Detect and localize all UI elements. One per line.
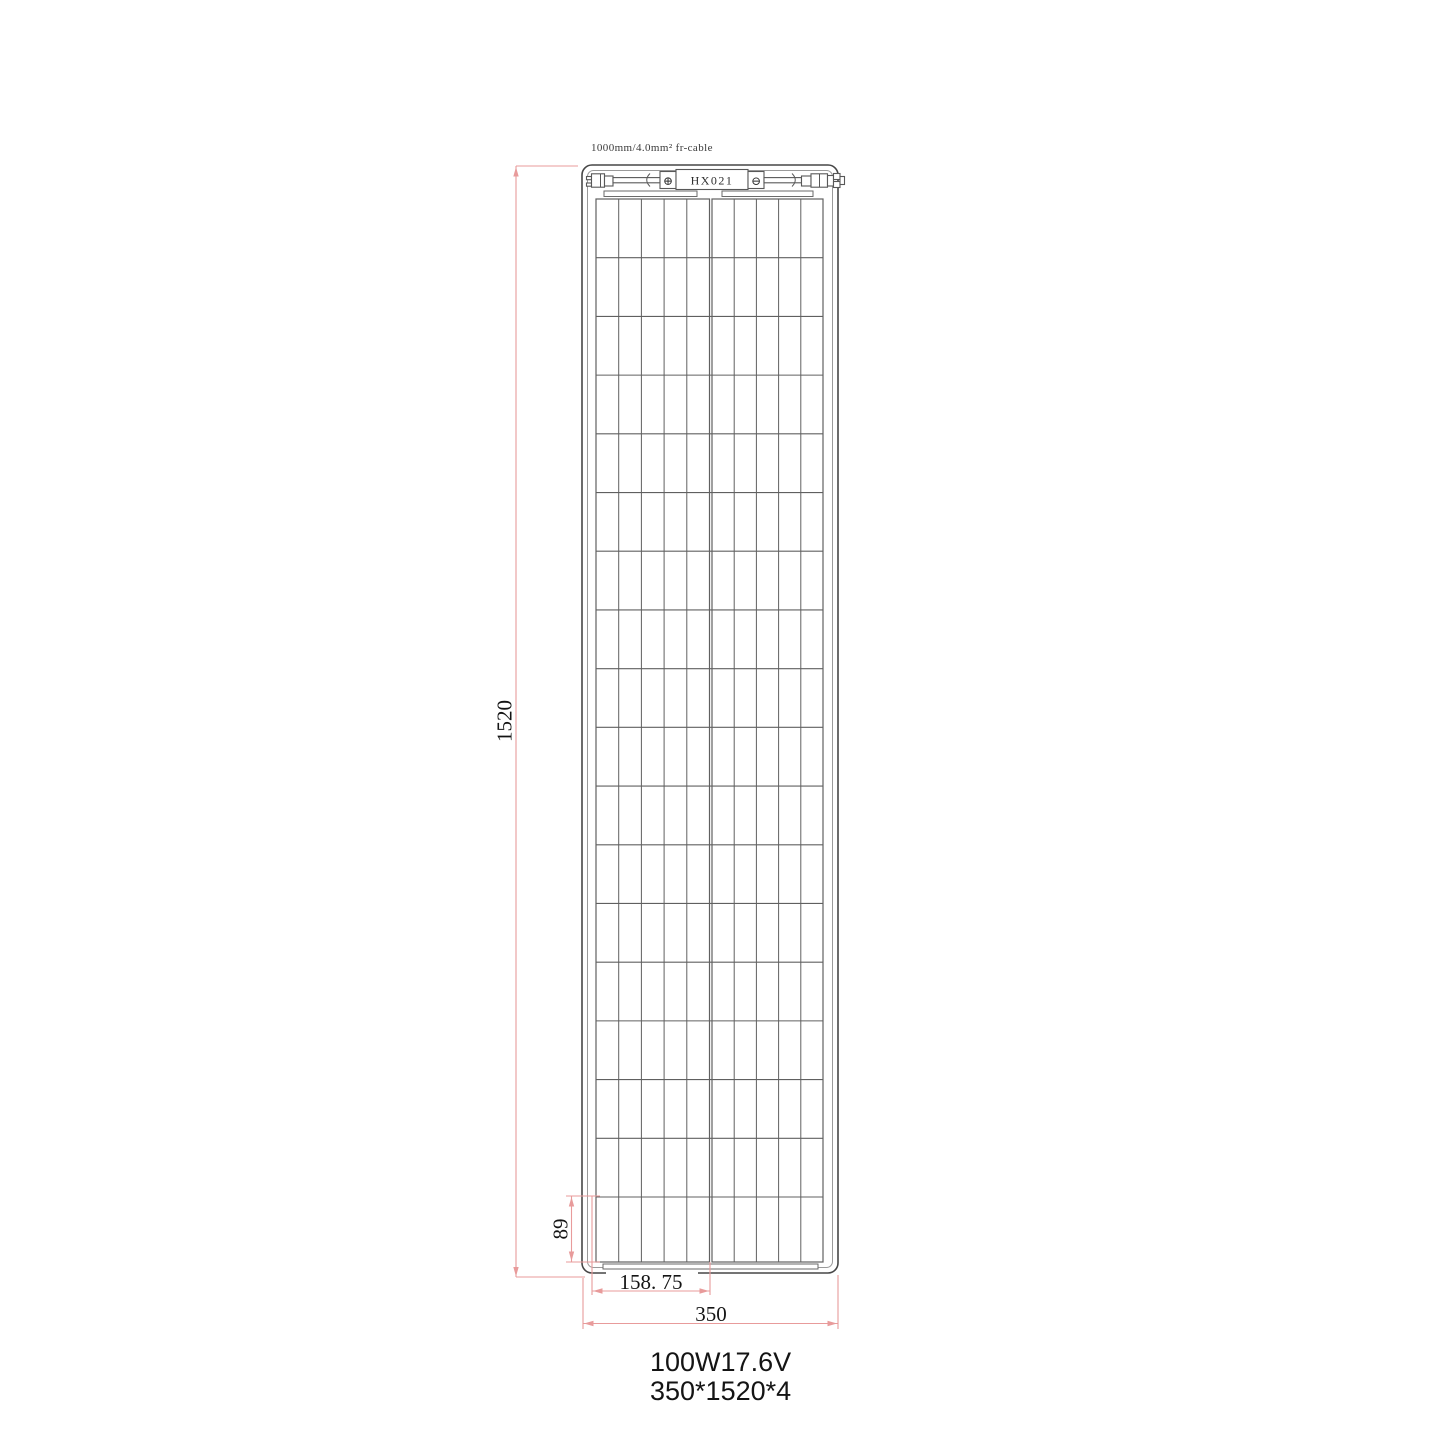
dimension-height-1520: 1520 (492, 166, 585, 1277)
cable-right (764, 178, 802, 183)
arrow-left-icon (593, 1288, 603, 1293)
arrow-right-icon (700, 1288, 710, 1293)
arrow-up-icon (513, 167, 518, 177)
polarity-minus-symbol: ⊖ (751, 174, 761, 188)
dim-value-half-width: 158. 75 (620, 1270, 683, 1294)
dim-value-height: 1520 (492, 700, 516, 742)
cable-length-label: 1000mm/4.0mm² fr-cable (591, 142, 713, 154)
spec-size: 350*1520*4 (650, 1376, 791, 1406)
busbar-top-left (604, 191, 697, 197)
polarity-plus-symbol: ⊕ (663, 174, 673, 188)
arrow-down-icon (513, 1267, 518, 1277)
spec-power-voltage: 100W17.6V (650, 1347, 791, 1377)
busbar-top-right (722, 191, 813, 197)
cable-left (613, 178, 660, 183)
dim-value-bottom-row: 89 (548, 1219, 572, 1240)
arrow-up-icon (569, 1197, 574, 1207)
arrow-right-icon (828, 1321, 838, 1326)
arrow-down-icon (569, 1252, 574, 1262)
solar-panel-drawing: 1000mm/4.0mm² fr-cable ⊕ HX021 ⊖ (0, 0, 1445, 1445)
junction-box-label: HX021 (691, 174, 734, 188)
dim-value-width: 350 (695, 1302, 727, 1326)
arrow-left-icon (584, 1321, 594, 1326)
drawing-canvas: 1000mm/4.0mm² fr-cable ⊕ HX021 ⊖ (0, 0, 1445, 1445)
